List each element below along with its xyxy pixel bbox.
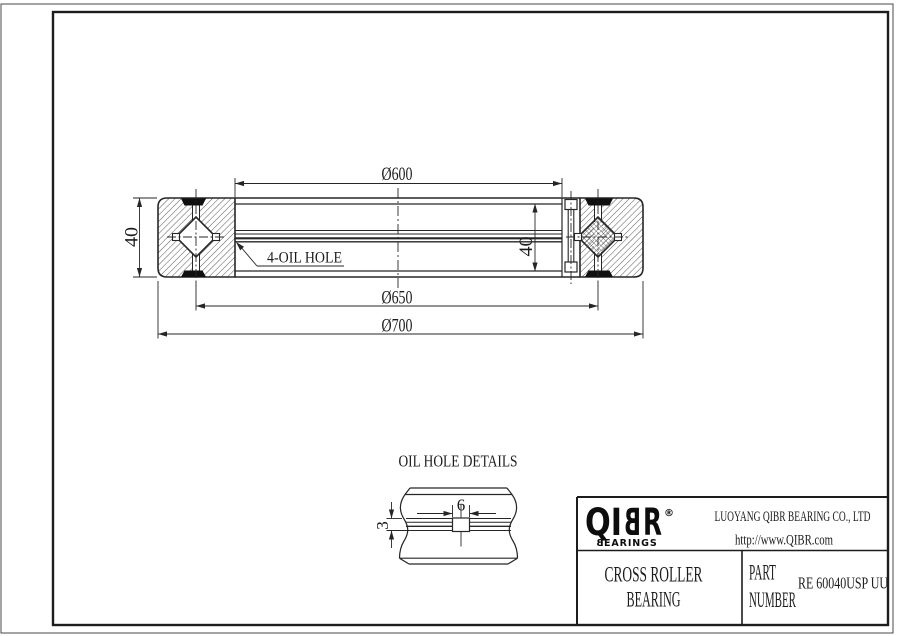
arrowhead	[532, 263, 537, 272]
leader-line	[240, 246, 257, 266]
detail-bottom-chamfer	[400, 558, 410, 564]
oil-hole-detail-view	[387, 488, 518, 564]
arrowhead	[137, 198, 142, 207]
engineering-drawing-svg: Ø600 Ø650 Ø700 40 40 4-OIL HOLE OIL HOLE…	[0, 0, 900, 636]
oil-hole-callout-label: 4-OIL HOLE	[267, 250, 342, 267]
left-bottom-seal	[181, 271, 206, 278]
right-bottom-seal	[585, 271, 613, 278]
arrowhead	[532, 204, 537, 213]
arrowhead	[589, 303, 598, 308]
arrowhead	[444, 511, 453, 516]
drawing-sheet: Ø600 Ø650 Ø700 40 40 4-OIL HOLE OIL HOLE…	[0, 0, 900, 636]
dim-label-bore: Ø600	[382, 164, 413, 185]
detail-top-chamfer	[507, 488, 512, 495]
logo-sub-text: EARINGS	[604, 538, 658, 549]
dim-label-outer: Ø700	[382, 316, 413, 337]
company-name: LUOYANG QIBR BEARING CO., LTD	[715, 509, 871, 525]
arrowhead	[196, 303, 205, 308]
arrowhead	[389, 531, 394, 540]
main-section-view	[133, 178, 643, 339]
part-number-value: RE 60040USP UU	[798, 574, 888, 593]
arrowhead	[389, 510, 394, 519]
detail-top-chamfer	[405, 488, 410, 495]
dim-label-hole-depth: 3	[373, 521, 392, 530]
registered-trademark-symbol: ®	[664, 508, 674, 519]
brand-logo: QI B R ® B EARINGS	[585, 501, 674, 549]
arrowhead	[634, 331, 643, 336]
part-label-line1: PART	[749, 560, 776, 585]
arrowhead	[137, 268, 142, 277]
dim-label-width-left: 40	[122, 227, 143, 247]
right-top-seal	[585, 199, 613, 206]
arrowhead	[470, 511, 479, 516]
logo-sub-mirrored-b: B	[596, 538, 603, 549]
left-top-seal	[181, 199, 206, 206]
left-section-block	[158, 189, 235, 286]
product-name-line2: BEARING	[627, 587, 681, 612]
detail-bottom-chamfer	[508, 558, 518, 564]
arrowhead	[553, 181, 562, 186]
dim-label-pitch: Ø650	[382, 288, 413, 309]
detail-view-title: OIL HOLE DETAILS	[399, 452, 518, 471]
company-website: http://www.QIBR.com	[735, 533, 833, 549]
dim-label-hole-width: 6	[457, 496, 466, 515]
oil-hole-rect	[453, 518, 470, 532]
arrowhead	[158, 331, 167, 336]
part-label-line2: NUMBER	[749, 587, 796, 612]
dim-label-width-right: 40	[516, 237, 537, 257]
product-name-line1: CROSS ROLLER	[605, 562, 703, 587]
arrowhead	[235, 181, 244, 186]
